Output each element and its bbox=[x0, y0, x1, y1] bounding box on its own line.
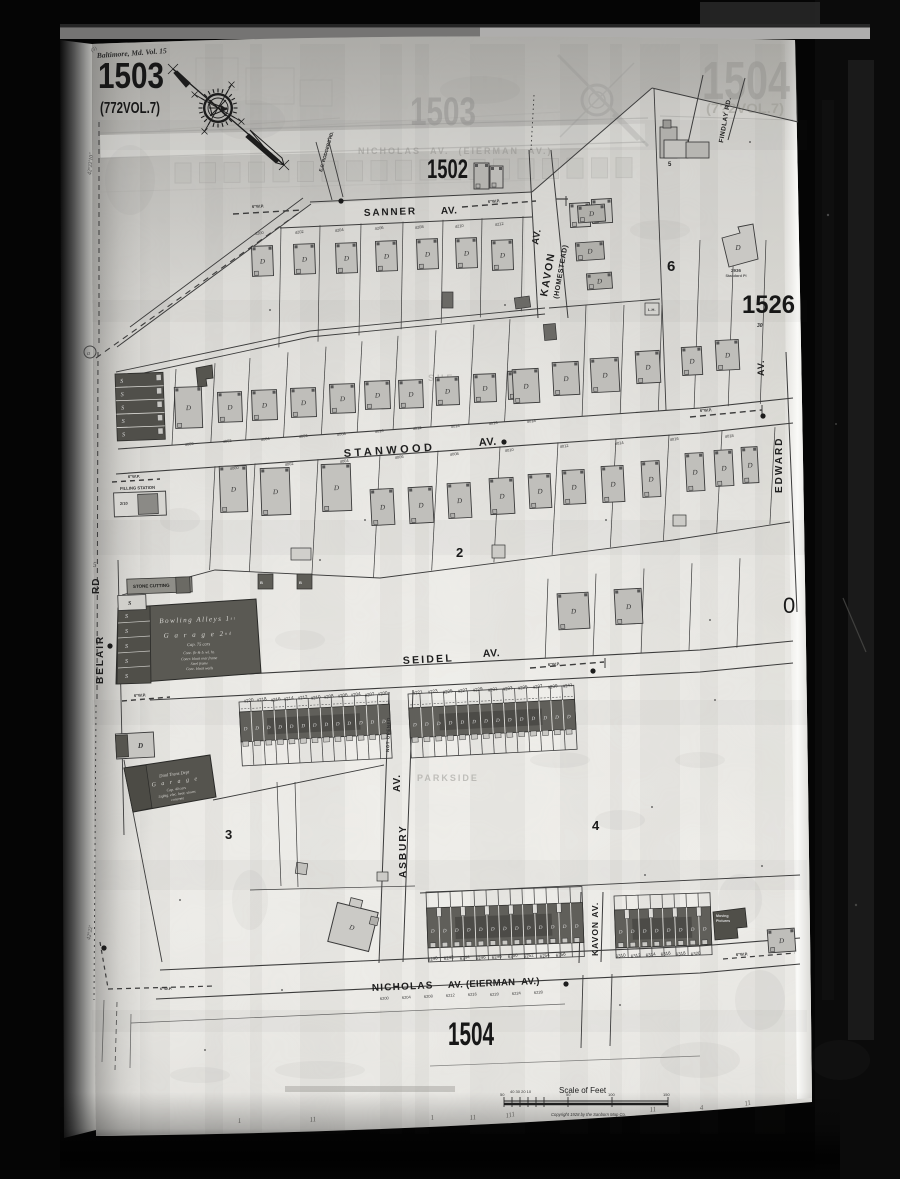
svg-text:D: D bbox=[266, 726, 271, 731]
svg-text:S: S bbox=[122, 432, 125, 438]
svg-text:D: D bbox=[430, 930, 435, 935]
svg-text:D: D bbox=[226, 403, 232, 411]
svg-text:6224: 6224 bbox=[512, 990, 522, 996]
svg-text:D: D bbox=[442, 929, 447, 934]
svg-text:D: D bbox=[691, 468, 697, 476]
svg-text:D: D bbox=[230, 485, 236, 493]
svg-text:(772VOL.7): (772VOL.7) bbox=[100, 100, 160, 117]
svg-text:D: D bbox=[444, 387, 450, 395]
svg-text:D: D bbox=[277, 725, 282, 730]
svg-text:S: S bbox=[125, 614, 128, 620]
svg-text:S: S bbox=[125, 644, 128, 650]
svg-text:KAVON AV.: KAVON AV. bbox=[590, 902, 600, 956]
svg-text:Standard Pl: Standard Pl bbox=[725, 274, 746, 278]
svg-text:6″W.P.: 6″W.P. bbox=[488, 198, 500, 204]
svg-text:D: D bbox=[720, 464, 726, 472]
svg-text:SANNER: SANNER bbox=[364, 206, 417, 219]
svg-text:D: D bbox=[481, 384, 487, 392]
svg-text:S: S bbox=[120, 379, 123, 385]
svg-text:D: D bbox=[609, 480, 615, 488]
svg-text:D: D bbox=[644, 363, 650, 371]
svg-text:6212: 6212 bbox=[446, 992, 456, 998]
svg-text:D: D bbox=[339, 395, 345, 403]
svg-text:6″W.P.: 6″W.P. bbox=[128, 474, 140, 479]
svg-text:D: D bbox=[562, 925, 567, 930]
svg-text:D: D bbox=[596, 277, 603, 285]
svg-text:D: D bbox=[538, 926, 543, 931]
svg-text:D: D bbox=[498, 492, 504, 500]
svg-text:D: D bbox=[254, 727, 259, 732]
svg-text:D: D bbox=[724, 351, 730, 359]
svg-text:D: D bbox=[300, 399, 306, 407]
svg-text:D: D bbox=[678, 928, 683, 933]
svg-text:D: D bbox=[463, 249, 469, 257]
svg-text:D: D bbox=[570, 483, 576, 491]
svg-text:D: D bbox=[688, 357, 694, 365]
svg-text:D: D bbox=[514, 927, 519, 932]
svg-text:D: D bbox=[630, 930, 635, 935]
svg-text:D: D bbox=[654, 929, 659, 934]
svg-text:S: S bbox=[121, 406, 124, 412]
svg-text:S: S bbox=[122, 419, 125, 425]
svg-text:D: D bbox=[542, 716, 547, 721]
svg-text:6: 6 bbox=[667, 258, 675, 275]
svg-text:D: D bbox=[566, 715, 571, 720]
svg-text:Steel frame: Steel frame bbox=[191, 661, 209, 666]
svg-text:D: D bbox=[642, 929, 647, 934]
svg-text:Pictures: Pictures bbox=[716, 919, 730, 923]
svg-text:D: D bbox=[300, 724, 305, 729]
svg-text:D: D bbox=[417, 501, 423, 509]
svg-text:D: D bbox=[570, 607, 576, 615]
svg-text:6200: 6200 bbox=[380, 995, 390, 1001]
svg-text:D: D bbox=[690, 928, 695, 933]
svg-text:D: D bbox=[554, 716, 559, 721]
svg-text:D: D bbox=[483, 719, 488, 724]
svg-text:D: D bbox=[536, 487, 542, 495]
svg-text:5: 5 bbox=[93, 561, 97, 569]
svg-text:D: D bbox=[358, 721, 363, 726]
svg-text:D: D bbox=[424, 723, 429, 728]
svg-text:6208: 6208 bbox=[424, 993, 434, 999]
svg-text:D: D bbox=[346, 722, 351, 727]
svg-text:D: D bbox=[383, 252, 389, 260]
svg-text:ASBURY: ASBURY bbox=[398, 824, 409, 878]
svg-text:D: D bbox=[289, 725, 294, 730]
svg-text:AV.: AV. bbox=[483, 647, 501, 660]
svg-text:D: D bbox=[625, 603, 631, 611]
svg-text:D: D bbox=[436, 722, 441, 727]
svg-text:D: D bbox=[471, 720, 476, 725]
svg-text:a: a bbox=[87, 351, 90, 357]
svg-text:D: D bbox=[478, 928, 483, 933]
svg-text:D: D bbox=[412, 723, 417, 728]
svg-text:(7?2VOL.7): (7?2VOL.7) bbox=[706, 100, 784, 116]
svg-text:L.H.: L.H. bbox=[648, 307, 656, 312]
svg-text:1503: 1503 bbox=[98, 55, 164, 96]
svg-text:D: D bbox=[507, 718, 512, 723]
svg-text:6″W.P.: 6″W.P. bbox=[134, 692, 146, 698]
svg-text:D: D bbox=[526, 926, 531, 931]
svg-text:D: D bbox=[448, 721, 453, 726]
svg-text:D: D bbox=[495, 719, 500, 724]
svg-text:D: D bbox=[185, 404, 191, 412]
svg-text:BELAIR: BELAIR bbox=[95, 635, 106, 684]
svg-text:D: D bbox=[137, 742, 143, 750]
svg-text:Moving: Moving bbox=[716, 914, 729, 918]
svg-text:D: D bbox=[519, 718, 524, 723]
svg-text:EDWARD: EDWARD bbox=[774, 437, 785, 493]
svg-text:6″W.P.: 6″W.P. bbox=[252, 203, 264, 209]
svg-text:6″W.P.: 6″W.P. bbox=[736, 951, 748, 957]
svg-text:S: S bbox=[121, 392, 124, 398]
svg-text:D: D bbox=[312, 724, 317, 729]
svg-text:4: 4 bbox=[592, 818, 600, 833]
svg-text:D: D bbox=[407, 390, 413, 398]
svg-text:D: D bbox=[647, 475, 653, 483]
svg-text:D: D bbox=[379, 503, 385, 511]
svg-text:6″W.P.: 6″W.P. bbox=[548, 661, 560, 667]
svg-text:D: D bbox=[272, 488, 278, 496]
svg-text:PARKSIDE: PARKSIDE bbox=[417, 773, 479, 783]
svg-text:2: 2 bbox=[456, 545, 463, 560]
svg-text:6228: 6228 bbox=[534, 989, 544, 995]
svg-text:6216: 6216 bbox=[468, 991, 478, 997]
svg-text:AV.: AV. bbox=[441, 205, 458, 217]
svg-text:D: D bbox=[702, 927, 707, 932]
svg-text:D: D bbox=[562, 375, 568, 383]
svg-text:D: D bbox=[530, 717, 535, 722]
svg-text:D: D bbox=[243, 727, 248, 732]
svg-text:3: 3 bbox=[225, 827, 232, 842]
svg-text:D: D bbox=[588, 210, 595, 218]
svg-text:AV.: AV. bbox=[478, 436, 497, 449]
svg-text:D: D bbox=[323, 723, 328, 728]
svg-text:D: D bbox=[343, 254, 349, 262]
svg-text:D: D bbox=[261, 401, 267, 409]
svg-text:D: D bbox=[502, 927, 507, 932]
svg-text:1502: 1502 bbox=[427, 154, 468, 184]
svg-text:D: D bbox=[734, 244, 740, 252]
svg-text:D: D bbox=[778, 937, 785, 945]
svg-text:S: S bbox=[125, 659, 128, 665]
svg-text:S: S bbox=[125, 674, 128, 680]
svg-text:D: D bbox=[459, 721, 464, 726]
svg-text:D: D bbox=[301, 255, 307, 263]
svg-text:2936: 2936 bbox=[731, 268, 742, 273]
svg-text:D: D bbox=[259, 257, 265, 265]
svg-text:D: D bbox=[574, 924, 579, 929]
svg-text:Cap. 75 cars: Cap. 75 cars bbox=[187, 641, 211, 647]
svg-text:D: D bbox=[369, 721, 374, 726]
svg-text:B: B bbox=[260, 580, 263, 585]
svg-text:D: D bbox=[522, 382, 528, 390]
svg-text:D: D bbox=[335, 722, 340, 727]
svg-text:6″W.P.: 6″W.P. bbox=[700, 407, 712, 413]
svg-text:2/10: 2/10 bbox=[120, 501, 129, 506]
svg-text:D: D bbox=[490, 927, 495, 932]
svg-text:6220: 6220 bbox=[490, 991, 500, 997]
svg-text:1526: 1526 bbox=[742, 291, 795, 319]
svg-text:30: 30 bbox=[757, 323, 763, 329]
svg-text:D: D bbox=[618, 930, 623, 935]
svg-text:6″W.P.: 6″W.P. bbox=[160, 986, 172, 991]
svg-text:AV.: AV. bbox=[756, 359, 766, 376]
svg-text:AV.: AV. bbox=[392, 774, 403, 792]
svg-text:D: D bbox=[499, 251, 505, 259]
svg-text:D: D bbox=[333, 484, 339, 492]
svg-text:D: D bbox=[374, 391, 380, 399]
svg-text:D: D bbox=[746, 461, 752, 469]
svg-text:6204: 6204 bbox=[402, 994, 412, 1000]
svg-text:D: D bbox=[601, 371, 607, 379]
svg-text:RD: RD bbox=[91, 578, 102, 594]
svg-text:1504: 1504 bbox=[448, 1016, 494, 1052]
svg-text:D: D bbox=[666, 929, 671, 934]
svg-text:B: B bbox=[299, 580, 302, 585]
svg-text:S: S bbox=[125, 629, 128, 635]
svg-text:D: D bbox=[550, 925, 555, 930]
svg-text:D: D bbox=[424, 250, 430, 258]
svg-text:D: D bbox=[456, 497, 462, 505]
svg-text:D: D bbox=[454, 929, 459, 934]
svg-text:0: 0 bbox=[783, 593, 795, 618]
svg-text:D: D bbox=[586, 247, 593, 255]
svg-text:D: D bbox=[466, 928, 471, 933]
